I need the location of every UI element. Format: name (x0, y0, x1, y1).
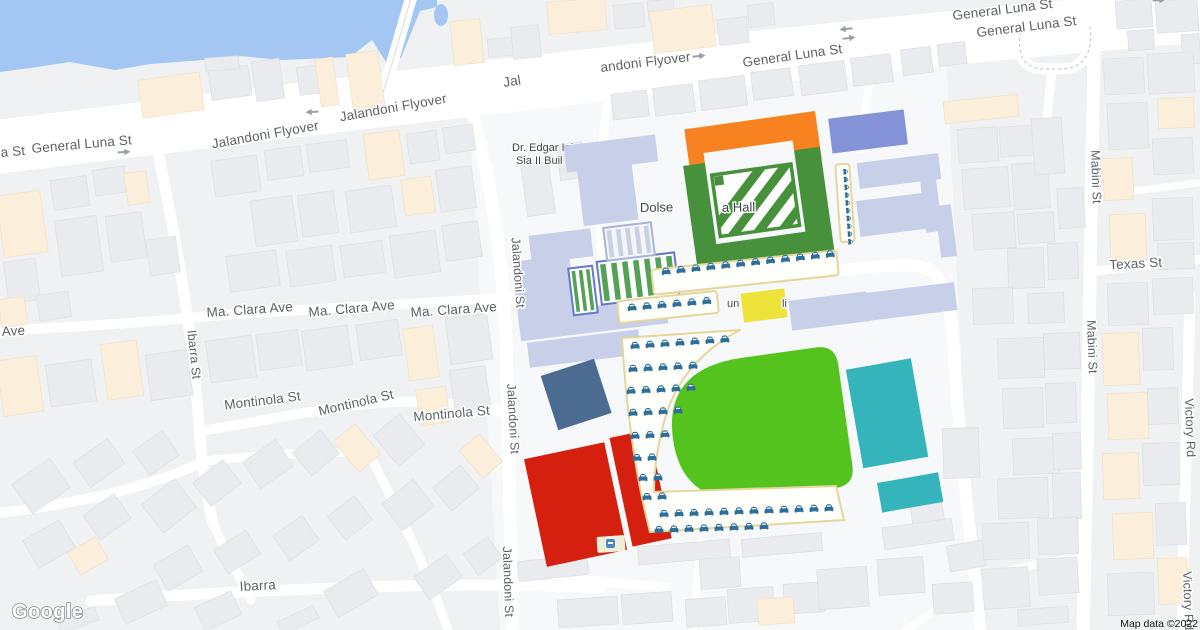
poi-label-hall-fragment: Dolse (640, 199, 674, 215)
street-label-jalandoni-flyover-fragment: Jal (502, 72, 522, 90)
map-viewport[interactable]: Dr. Edgar InjeSia II Buil (0, 0, 1200, 630)
poi-label-building-fragment: un (727, 298, 739, 310)
street-label-ibarra: Ibarra (239, 577, 276, 594)
poi-label-hall-fragment: a Hall (722, 199, 756, 215)
poi-label-dr-edgar: Sia II Buil (516, 155, 562, 167)
street-label-ave-fragment: Ave (1, 323, 25, 339)
street-label-mabini-st: Mabini St (1084, 320, 1100, 374)
street-label-texas-st: Texas St (1109, 255, 1163, 273)
water-pond (434, 4, 448, 26)
poi-label-building-fragment: li (782, 298, 787, 310)
map-canvas[interactable]: Dr. Edgar InjeSia II Buil (0, 0, 1200, 630)
map-data-attribution: Map data ©2022 (1120, 618, 1198, 630)
google-logo[interactable]: Google (12, 601, 83, 623)
street-label-victory-rd: Victory Rd (1182, 398, 1198, 457)
street-label-jalandoni-st: Jalandoni St (500, 546, 516, 617)
overlay-yellow-building[interactable] (740, 288, 787, 322)
street-label-mabini-st: Mabini St (1088, 150, 1104, 204)
school-poi[interactable] (596, 535, 625, 553)
street-label-general-luna-fragment: a St (0, 143, 26, 160)
